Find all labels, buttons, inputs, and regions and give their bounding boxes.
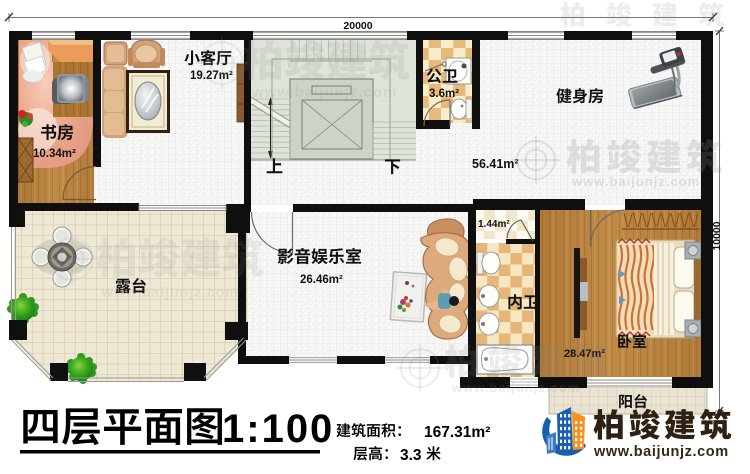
- svg-text:26.46m²: 26.46m²: [300, 274, 343, 286]
- svg-text:56.41m²: 56.41m²: [472, 157, 519, 171]
- svg-text:www.baijunjz.com: www.baijunjz.com: [593, 444, 729, 460]
- svg-text:167.31m²: 167.31m²: [424, 424, 490, 441]
- svg-text:3.3: 3.3: [400, 447, 422, 464]
- svg-text:1:100: 1:100: [222, 407, 334, 451]
- svg-text:www.baijunjz.com: www.baijunjz.com: [571, 174, 700, 189]
- svg-text:10000: 10000: [711, 221, 723, 250]
- svg-text:20000: 20000: [343, 20, 372, 32]
- svg-text:www.baijunjz.com: www.baijunjz.com: [451, 380, 580, 395]
- svg-text:www.baijunjz.com: www.baijunjz.com: [251, 84, 397, 101]
- svg-text:1.44m²: 1.44m²: [478, 219, 510, 230]
- svg-text:10.34m²: 10.34m²: [33, 148, 76, 160]
- svg-text:3.6m²: 3.6m²: [429, 88, 459, 100]
- svg-text:www.baijunjz.com: www.baijunjz.com: [101, 284, 239, 300]
